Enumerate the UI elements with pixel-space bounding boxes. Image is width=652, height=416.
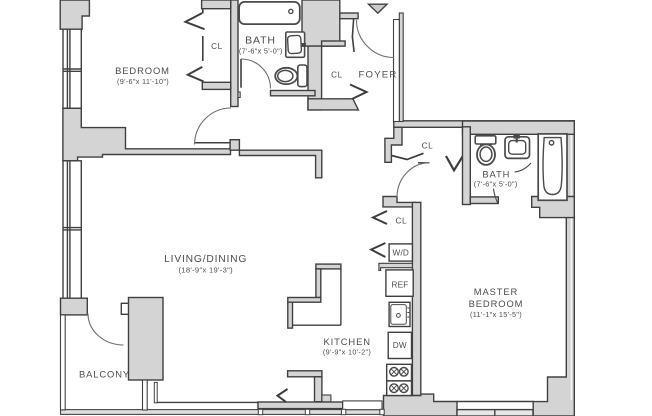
- svg-text:LIVING/DINING: LIVING/DINING: [164, 254, 247, 265]
- svg-text:CL: CL: [331, 71, 343, 80]
- svg-text:REF: REF: [392, 281, 409, 290]
- svg-text:CL: CL: [395, 217, 407, 226]
- svg-text:(9'-9"x 10'-2"): (9'-9"x 10'-2"): [323, 347, 371, 356]
- svg-text:BEDROOM: BEDROOM: [469, 298, 524, 309]
- svg-text:(9'-6"x 11'-10"): (9'-6"x 11'-10"): [117, 77, 169, 86]
- svg-text:(7'-6"x 5'-0"): (7'-6"x 5'-0"): [474, 180, 518, 189]
- svg-text:MASTER: MASTER: [474, 286, 518, 297]
- svg-text:(7'-6"x 5'-0"): (7'-6"x 5'-0"): [239, 47, 283, 56]
- svg-text:BATH: BATH: [245, 35, 276, 47]
- svg-text:BATH: BATH: [482, 169, 510, 180]
- svg-text:CL: CL: [422, 142, 434, 151]
- svg-text:(11'-1"x 15'-5"): (11'-1"x 15'-5"): [470, 310, 522, 319]
- svg-text:BEDROOM: BEDROOM: [115, 65, 170, 76]
- svg-text:CL: CL: [211, 42, 223, 51]
- svg-text:BALCONY: BALCONY: [79, 368, 130, 379]
- svg-text:(18'-9"x 19'-3"): (18'-9"x 19'-3"): [178, 265, 233, 274]
- svg-text:FOYER: FOYER: [358, 70, 397, 81]
- svg-text:KITCHEN: KITCHEN: [323, 336, 370, 347]
- svg-text:DW: DW: [393, 341, 407, 350]
- svg-text:W/D: W/D: [393, 249, 410, 258]
